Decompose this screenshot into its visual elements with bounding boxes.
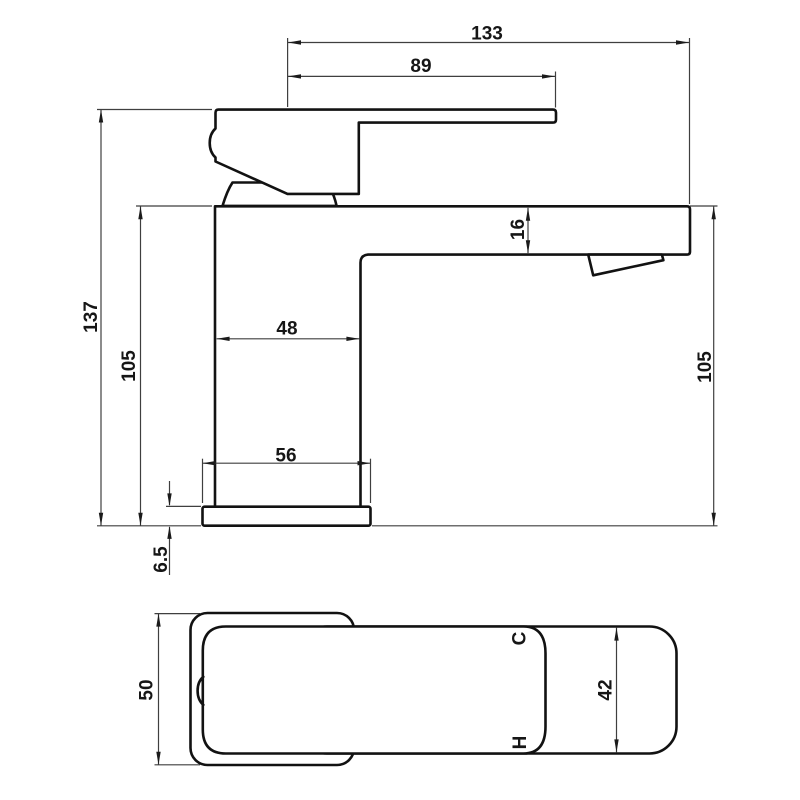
svg-text:6.5: 6.5 xyxy=(151,546,172,573)
svg-text:56: 56 xyxy=(275,446,296,467)
svg-text:42: 42 xyxy=(595,679,616,700)
svg-text:105: 105 xyxy=(695,351,716,383)
svg-text:C: C xyxy=(509,631,530,645)
svg-text:48: 48 xyxy=(276,318,297,339)
svg-text:H: H xyxy=(510,736,531,750)
svg-text:50: 50 xyxy=(137,679,158,700)
svg-text:133: 133 xyxy=(471,23,503,44)
svg-text:16: 16 xyxy=(508,219,529,240)
svg-text:137: 137 xyxy=(81,301,102,333)
svg-text:89: 89 xyxy=(410,56,431,77)
svg-text:105: 105 xyxy=(119,350,140,382)
